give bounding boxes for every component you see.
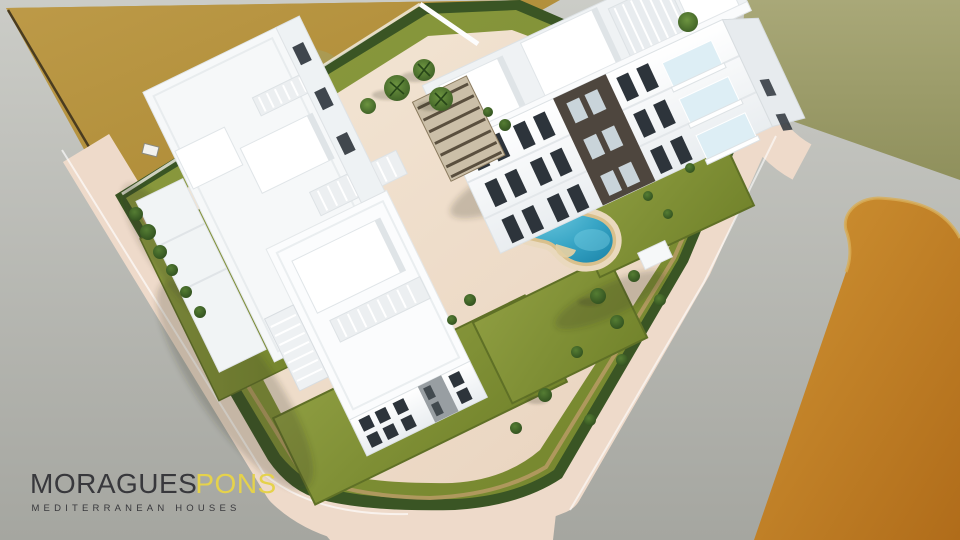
brand-wordmark: MORAGUESPONS <box>30 468 260 500</box>
architectural-render-image: MORAGUESPONS MEDITERRANEAN HOUSES <box>0 0 960 540</box>
water-highlight <box>574 229 610 251</box>
brand-tagline: MEDITERRANEAN HOUSES <box>30 503 242 514</box>
brand-logo: MORAGUESPONS MEDITERRANEAN HOUSES <box>30 468 260 514</box>
brand-primary: MORAGUES <box>30 468 197 499</box>
scene-canvas <box>0 0 960 540</box>
brand-secondary: PONS <box>195 468 276 499</box>
